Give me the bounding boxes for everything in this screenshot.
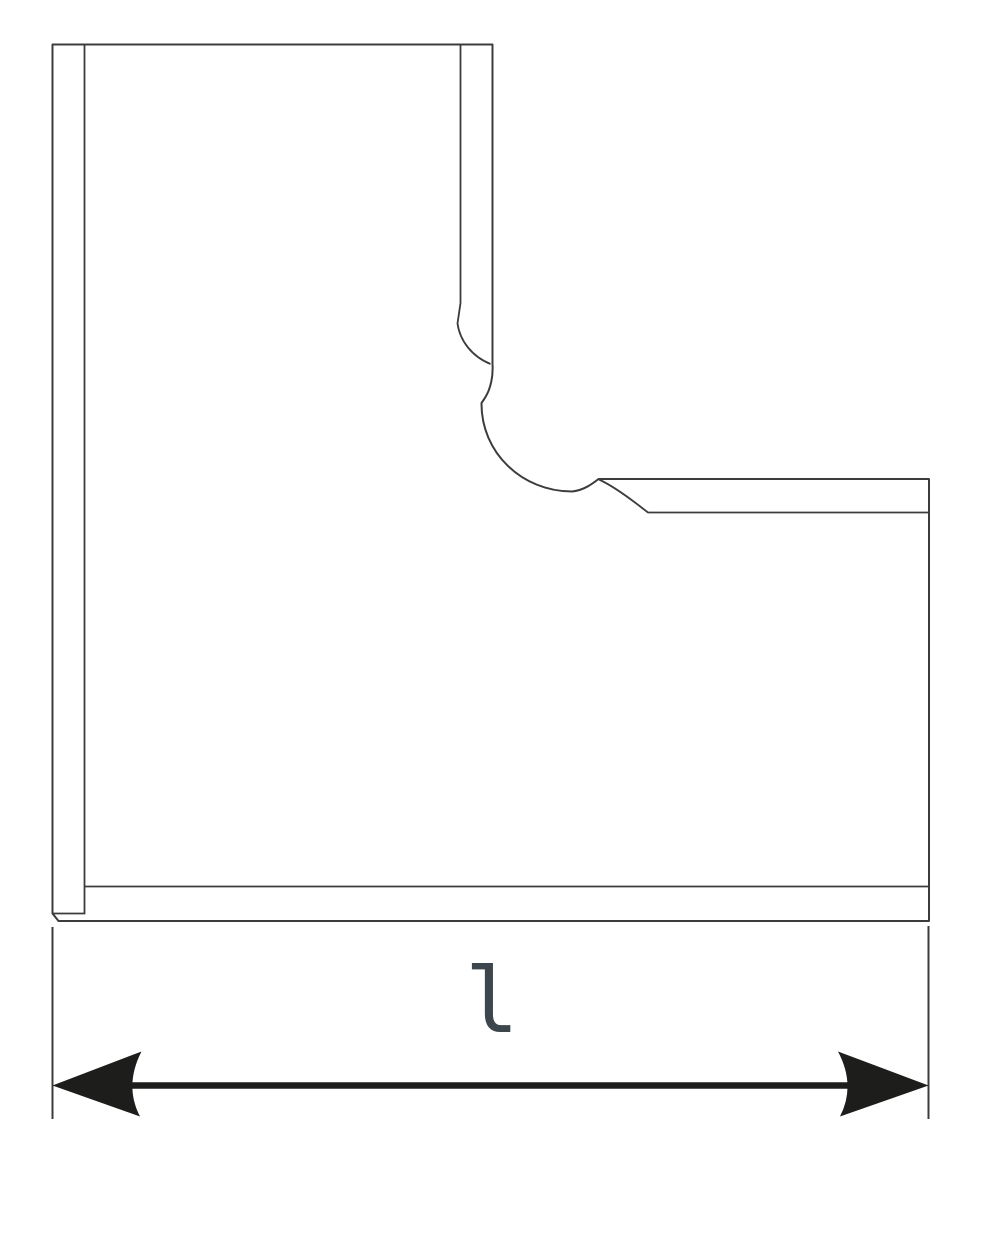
- profile-outline: [53, 45, 930, 922]
- profile-diagram: l: [0, 0, 992, 1253]
- arrowhead-right-icon: [838, 1052, 929, 1117]
- arrowhead-left-icon: [53, 1052, 142, 1117]
- dimension-label: l: [465, 949, 519, 1054]
- drawing-canvas: l: [0, 0, 992, 1253]
